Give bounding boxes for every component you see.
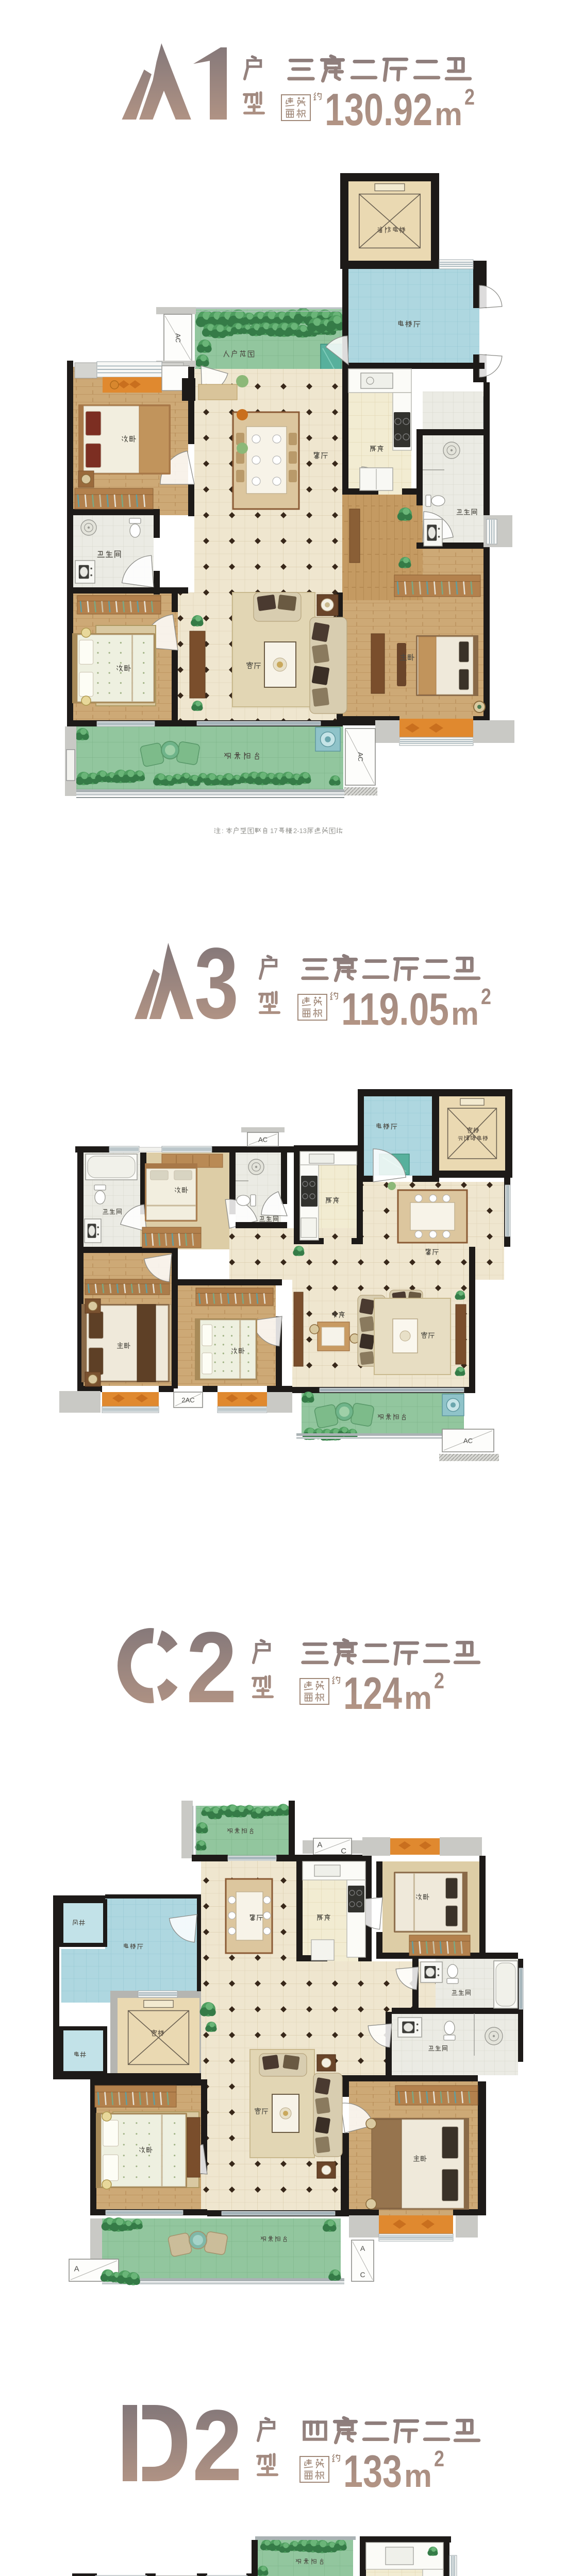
- svg-text:m: m: [435, 97, 462, 132]
- svg-text:A: A: [74, 2265, 79, 2274]
- svg-text:AC: AC: [463, 1437, 473, 1445]
- svg-text:A: A: [360, 2244, 365, 2252]
- svg-text:AC: AC: [258, 1136, 268, 1144]
- svg-text:m: m: [451, 996, 479, 1032]
- svg-text:m: m: [404, 2459, 432, 2494]
- svg-text:17: 17: [270, 827, 277, 835]
- svg-text:2AC: 2AC: [181, 1396, 194, 1404]
- svg-text:2: 2: [464, 84, 475, 110]
- svg-text:AC: AC: [174, 333, 182, 343]
- svg-text:3: 3: [194, 934, 239, 1040]
- svg-text:2: 2: [481, 984, 491, 1009]
- svg-text:m: m: [404, 1681, 432, 1716]
- svg-text:2-13: 2-13: [293, 827, 307, 835]
- svg-text:2: 2: [186, 1618, 237, 1724]
- svg-text:C: C: [360, 2270, 365, 2279]
- svg-text:2: 2: [434, 2446, 444, 2471]
- svg-text:AC: AC: [357, 752, 364, 761]
- svg-text:133: 133: [343, 2446, 402, 2497]
- svg-text:A: A: [317, 1841, 322, 1850]
- svg-text::: :: [222, 827, 224, 835]
- svg-text:119.05: 119.05: [341, 984, 449, 1035]
- svg-text:2: 2: [192, 2396, 242, 2502]
- svg-text:2: 2: [434, 1668, 444, 1693]
- svg-text:130.92: 130.92: [325, 84, 432, 135]
- svg-text:C: C: [341, 1846, 346, 1855]
- svg-text:124: 124: [343, 1668, 402, 1719]
